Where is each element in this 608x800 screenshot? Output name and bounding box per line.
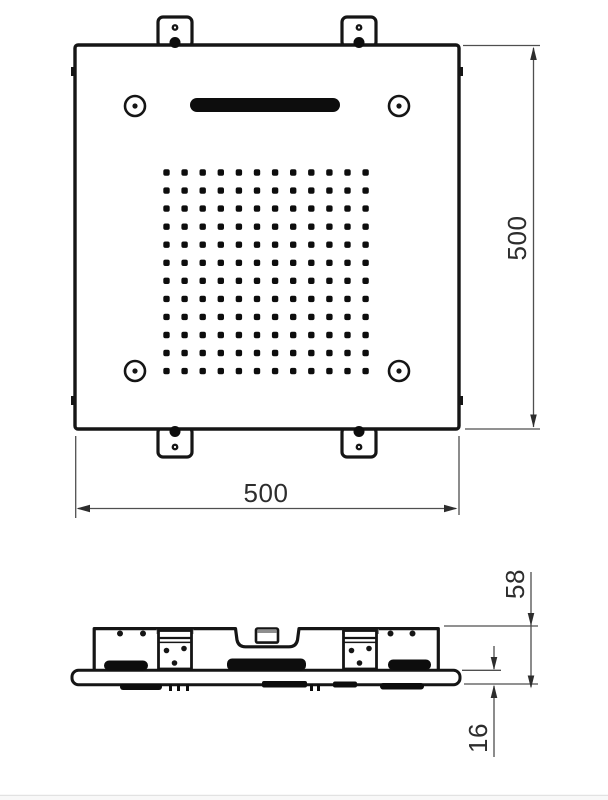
waterfall-slot [190, 98, 340, 112]
nozzle-dot [326, 187, 332, 193]
nozzle-dot [163, 224, 169, 230]
nozzle-dot [308, 278, 314, 284]
nozzle-dot [236, 314, 242, 320]
nozzle-dot [254, 187, 260, 193]
under-flange-bump [333, 682, 357, 688]
nozzle-dot [163, 205, 169, 211]
edge-nub [459, 67, 464, 76]
nozzle-dot [181, 260, 187, 266]
nozzle-dot [200, 350, 206, 356]
nozzle-dot [290, 368, 296, 374]
nozzle-dot [290, 278, 296, 284]
side-bracket-right [344, 631, 377, 670]
nozzle-dot [326, 350, 332, 356]
nozzle-dot [218, 205, 224, 211]
nozzle-dot [218, 224, 224, 230]
nozzle-dot [308, 314, 314, 320]
nozzle-dot [290, 260, 296, 266]
nozzle-dot [254, 242, 260, 248]
nozzle-dot [163, 350, 169, 356]
nozzle-dot [362, 296, 368, 302]
nozzle-dot [344, 332, 350, 338]
nozzle-dot [362, 224, 368, 230]
nozzle-dot [218, 278, 224, 284]
nozzle-dot [163, 314, 169, 320]
nozzle-dot [344, 169, 350, 175]
side-bracket-left [159, 631, 192, 670]
nozzle-dot [236, 332, 242, 338]
nozzle-dot [200, 368, 206, 374]
nozzle-dot [326, 260, 332, 266]
nozzle-dot [290, 224, 296, 230]
nozzle-dot [272, 296, 278, 302]
nozzle-dot [344, 260, 350, 266]
nozzle-dot [326, 332, 332, 338]
nozzle-dot [344, 368, 350, 374]
nozzle-dot [200, 314, 206, 320]
nozzle-dot [200, 332, 206, 338]
arrowhead-down-icon [530, 415, 537, 428]
nozzle-dot [200, 224, 206, 230]
rivet-dot [388, 631, 394, 637]
nozzle-dot [236, 278, 242, 284]
plate-height-value: 500 [502, 216, 532, 261]
screw-hole-top-left [125, 96, 145, 116]
nozzle-dot [290, 169, 296, 175]
nozzle-dot [236, 296, 242, 302]
nozzle-dot [254, 314, 260, 320]
nozzle-dot [308, 187, 314, 193]
nozzle-dot [344, 314, 350, 320]
nozzle-dot [344, 224, 350, 230]
nozzle-dot [362, 242, 368, 248]
nozzle-dot [236, 260, 242, 266]
edge-nub [71, 396, 76, 405]
gasket-bar [104, 661, 148, 671]
tab-notch [354, 37, 365, 48]
edge-nub [459, 396, 464, 405]
nozzle-dot [362, 205, 368, 211]
nozzle-dot [236, 205, 242, 211]
nozzle-dot [272, 205, 278, 211]
nozzle-dot [308, 350, 314, 356]
nozzle-dot [308, 296, 314, 302]
nozzle-dot [326, 368, 332, 374]
under-flange-bump [262, 681, 307, 688]
tab-notch [170, 37, 181, 48]
nozzle-dot [290, 332, 296, 338]
nozzle-dot [200, 242, 206, 248]
nozzle-dot [272, 224, 278, 230]
nozzle-dot [218, 187, 224, 193]
nozzle-dot [218, 350, 224, 356]
nozzle-dot [362, 350, 368, 356]
nozzle-dot [344, 296, 350, 302]
under-flange-tick [169, 684, 172, 691]
nozzle-dot [218, 332, 224, 338]
arrowhead-right-icon [444, 505, 458, 512]
nozzle-dot [200, 278, 206, 284]
nozzle-dot [254, 296, 260, 302]
arrowhead-up-icon [530, 47, 537, 60]
nozzle-dot [236, 350, 242, 356]
top-view: 500 500 [71, 17, 540, 518]
nozzle-dot [163, 260, 169, 266]
nozzle-dot [290, 296, 296, 302]
nozzle-dot [163, 296, 169, 302]
nozzle-dot [181, 205, 187, 211]
nozzle-dot [181, 350, 187, 356]
tab-notch [170, 426, 181, 437]
nozzle-dot [236, 169, 242, 175]
nozzle-dot [254, 224, 260, 230]
rivet-dot [117, 631, 123, 637]
nozzle-dot [254, 278, 260, 284]
nozzle-dot [163, 368, 169, 374]
screw-hole-bottom-right [389, 361, 409, 381]
nozzle-dot [181, 314, 187, 320]
nozzle-dot [272, 350, 278, 356]
screw-hole-bottom-left [125, 361, 145, 381]
nozzle-dot [200, 296, 206, 302]
under-flange-tick [317, 684, 320, 691]
nozzle-dot [326, 296, 332, 302]
nozzle-dot [254, 368, 260, 374]
nozzle-dot [362, 314, 368, 320]
nozzle-dot [290, 350, 296, 356]
under-flange-tick [177, 684, 180, 691]
nozzle-dot [326, 169, 332, 175]
under-flange-bump [120, 684, 162, 691]
nozzle-dot [200, 169, 206, 175]
technical-drawing: 500 500 [0, 0, 608, 800]
nozzle-dot [362, 169, 368, 175]
nozzle-dot [272, 187, 278, 193]
under-flange-bump [380, 683, 424, 690]
nozzle-dot [181, 332, 187, 338]
inlet-connector [256, 629, 278, 643]
nozzle-dot [308, 368, 314, 374]
nozzle-dot [218, 296, 224, 302]
drawing-page: 500 500 [0, 0, 608, 800]
nozzle-dot [254, 260, 260, 266]
nozzle-dot [326, 242, 332, 248]
rivet-dot [140, 631, 146, 637]
gasket-bar [227, 659, 306, 671]
nozzle-dot [326, 205, 332, 211]
nozzle-dot [163, 278, 169, 284]
arrowhead-down-icon [491, 657, 498, 670]
nozzle-dot [308, 260, 314, 266]
nozzle-dot [290, 314, 296, 320]
nozzle-dot [362, 260, 368, 266]
nozzle-dot [308, 332, 314, 338]
nozzle-dot [326, 224, 332, 230]
nozzle-dot [181, 368, 187, 374]
plate-width-value: 500 [244, 478, 289, 508]
nozzle-dot [181, 278, 187, 284]
nozzle-dot [290, 205, 296, 211]
nozzle-dot [163, 332, 169, 338]
nozzle-dot [362, 187, 368, 193]
nozzle-dot [272, 242, 278, 248]
nozzle-dot [218, 314, 224, 320]
nozzle-dot [218, 260, 224, 266]
nozzle-dot [326, 278, 332, 284]
nozzle-dot [362, 368, 368, 374]
nozzle-dot [344, 242, 350, 248]
nozzle-dot [254, 205, 260, 211]
nozzle-dot [362, 278, 368, 284]
nozzle-dot [181, 224, 187, 230]
nozzle-dot [272, 169, 278, 175]
nozzle-dot [236, 187, 242, 193]
nozzle-dot [272, 278, 278, 284]
under-flange-tick [186, 684, 189, 691]
nozzle-dot [200, 205, 206, 211]
nozzle-dot [163, 187, 169, 193]
nozzle-dot [308, 169, 314, 175]
nozzle-dot [163, 242, 169, 248]
nozzle-dot [181, 187, 187, 193]
nozzle-dot [308, 224, 314, 230]
nozzle-dot [254, 350, 260, 356]
nozzle-dot [290, 187, 296, 193]
nozzle-dot [200, 260, 206, 266]
nozzle-dot [272, 260, 278, 266]
side-view: 58 16 [72, 569, 538, 757]
nozzle-dot [308, 242, 314, 248]
nozzle-dot [254, 169, 260, 175]
nozzle-dot [272, 368, 278, 374]
arrowhead-up-icon [491, 685, 498, 698]
nozzle-dot [344, 278, 350, 284]
nozzle-dot [362, 332, 368, 338]
nozzle-dot [236, 224, 242, 230]
nozzle-dot [344, 187, 350, 193]
nozzle-dot [181, 242, 187, 248]
nozzle-dot [254, 332, 260, 338]
nozzle-dot [344, 350, 350, 356]
nozzle-dot [181, 169, 187, 175]
nozzle-dot [200, 187, 206, 193]
arrowhead-down-icon [528, 613, 535, 626]
nozzle-dot [218, 242, 224, 248]
nozzle-dot [344, 205, 350, 211]
rivet-dot [410, 631, 416, 637]
nozzle-dot [236, 368, 242, 374]
nozzle-dot [290, 242, 296, 248]
nozzle-dot [272, 332, 278, 338]
nozzle-dot [218, 169, 224, 175]
arrowhead-down-icon [528, 676, 535, 689]
under-flange-tick [310, 684, 313, 691]
arrowhead-left-icon [77, 505, 91, 512]
side-height-value: 58 [500, 569, 530, 599]
nozzle-dot [308, 205, 314, 211]
nozzle-dot [218, 368, 224, 374]
flange-thickness-value: 16 [463, 723, 493, 753]
tab-notch [354, 426, 365, 437]
page-footer-band [0, 796, 608, 800]
nozzle-dot [163, 169, 169, 175]
nozzle-dot [181, 296, 187, 302]
nozzle-dot [326, 314, 332, 320]
edge-nub [71, 67, 76, 76]
screw-hole-top-right [389, 96, 409, 116]
gasket-bar [388, 660, 431, 671]
nozzle-dot [272, 314, 278, 320]
nozzle-dot [236, 242, 242, 248]
